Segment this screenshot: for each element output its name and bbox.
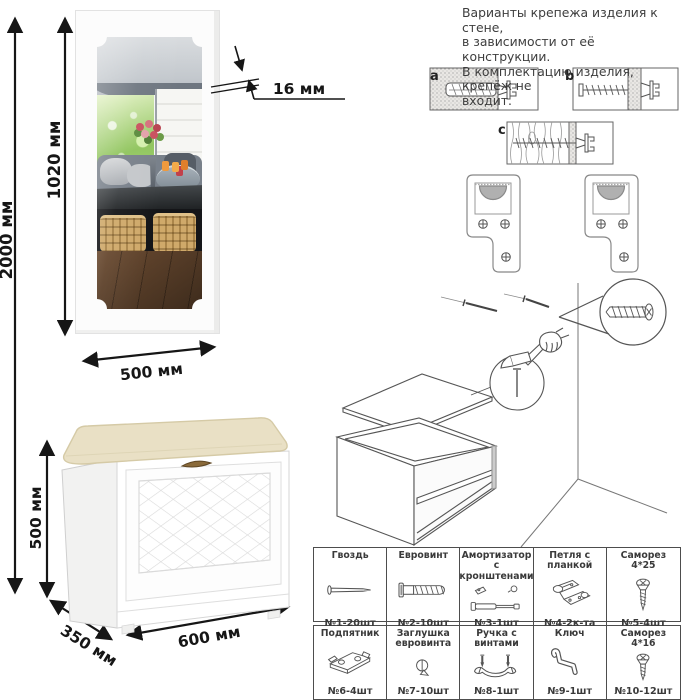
mirror-panel xyxy=(75,10,220,334)
dimension-total-height-label: 2000 мм xyxy=(0,201,16,280)
thickness-annotation xyxy=(211,46,345,99)
handle-icon xyxy=(462,650,530,686)
hardware-cell-nail: Гвоздь №1-20шт xyxy=(314,548,387,631)
hardware-count: №10-12шт xyxy=(614,686,672,697)
wall-corner xyxy=(521,283,667,547)
wall-mount-note: Варианты крепежа изделия к стене, в зави… xyxy=(462,6,682,108)
hardware-cell-hinge: Петля с планкой №4-2к-та xyxy=(534,548,607,631)
hardware-name: Заглушка евровинта xyxy=(389,629,457,650)
hardware-name: Подпятник xyxy=(321,629,380,639)
hardware-count: №6-4шт xyxy=(328,686,373,697)
hardware-cell-screw-4x25: Саморез 4*25 №5-4шт xyxy=(607,548,680,631)
dimension-mirror-width-label: 500 мм xyxy=(119,360,184,384)
hardware-cell-key: Ключ №9-1шт xyxy=(534,626,607,699)
hardware-row: Гвоздь №1-20шт Евровинт xyxy=(313,547,681,622)
hardware-table: Гвоздь №1-20шт Евровинт xyxy=(313,547,681,700)
hardware-name: Амортизатор с кронштенами xyxy=(459,551,533,582)
dimension-bench-width xyxy=(128,607,288,635)
dimension-mirror-height-label: 1020 мм xyxy=(45,121,64,200)
bench-cushion xyxy=(64,418,288,464)
bench-door-quilt-panel xyxy=(139,473,270,573)
option-c-label: c xyxy=(498,123,506,138)
cabinet-carcass xyxy=(337,418,496,545)
shoe-bench xyxy=(62,418,289,634)
dimension-mirror-width xyxy=(84,347,214,361)
hardware-cell-gas-strut: Амортизатор с кронштенами №3-1шт xyxy=(460,548,533,631)
hex-key-icon xyxy=(536,639,604,686)
assembly-illustration xyxy=(337,279,667,547)
hardware-cell-cap: Заглушка евровинта №7-10шт xyxy=(387,626,460,699)
bench-handle-icon xyxy=(182,461,211,467)
gas-strut-icon xyxy=(462,582,530,618)
hardware-name: Гвоздь xyxy=(332,551,369,561)
hardware-name: Ключ xyxy=(555,629,585,639)
nail-icon xyxy=(441,294,549,311)
screw-callout xyxy=(559,279,666,345)
hammer-icon xyxy=(501,343,545,368)
hand-icon xyxy=(540,328,569,352)
back-panel xyxy=(343,374,492,435)
short-screw-icon xyxy=(609,650,678,686)
hardware-name: Евровинт xyxy=(399,551,449,561)
hardware-cell-euro-screw: Евровинт №2-10шт xyxy=(387,548,460,631)
dimension-bench-width-label: 600 мм xyxy=(177,623,242,652)
dimension-bench-depth xyxy=(51,601,111,639)
keyhole-bracket-icon xyxy=(585,175,638,272)
hardware-name: Ручка с винтами xyxy=(462,629,530,650)
keyhole-bracket-icon xyxy=(467,175,520,272)
dimension-bench-height-label: 500 мм xyxy=(27,486,45,549)
bench-door xyxy=(126,462,281,601)
dimension-thickness-label: 16 мм xyxy=(273,80,325,98)
euro-screw-icon xyxy=(389,561,457,618)
screw-icon xyxy=(606,304,653,320)
nail-icon xyxy=(316,561,384,618)
hardware-name: Петля с планкой xyxy=(536,551,604,572)
hardware-cell-handle: Ручка с винтами №8-1шт xyxy=(460,626,533,699)
hardware-cell-screw-4x16: Саморез 4*16 №10-12шт xyxy=(607,626,680,699)
hardware-count: №7-10шт xyxy=(398,686,449,697)
long-screw-icon xyxy=(609,572,678,618)
instruction-sheet: 2000 мм 1020 мм 500 мм 16 мм 500 мм 350 … xyxy=(0,0,683,700)
dimension-bench-depth-label: 350 мм xyxy=(57,621,120,670)
hardware-cell-footplate: Подпятник №6-4шт xyxy=(314,626,387,699)
glass-sheen xyxy=(97,37,202,309)
option-a-label: a xyxy=(430,69,439,84)
wall-mount-option-c xyxy=(507,122,613,164)
footplate-icon xyxy=(316,639,384,686)
hinge-icon xyxy=(536,572,604,618)
hardware-row: Подпятник №6-4шт Заглушка евровинта xyxy=(313,625,681,700)
hardware-name: Саморез 4*16 xyxy=(609,629,678,650)
mirror-glass xyxy=(97,37,202,309)
hammer-callout xyxy=(471,328,569,410)
cap-icon xyxy=(389,650,457,686)
hardware-name: Саморез 4*25 xyxy=(609,551,678,572)
hardware-count: №8-1шт xyxy=(474,686,519,697)
hardware-count: №9-1шт xyxy=(547,686,592,697)
